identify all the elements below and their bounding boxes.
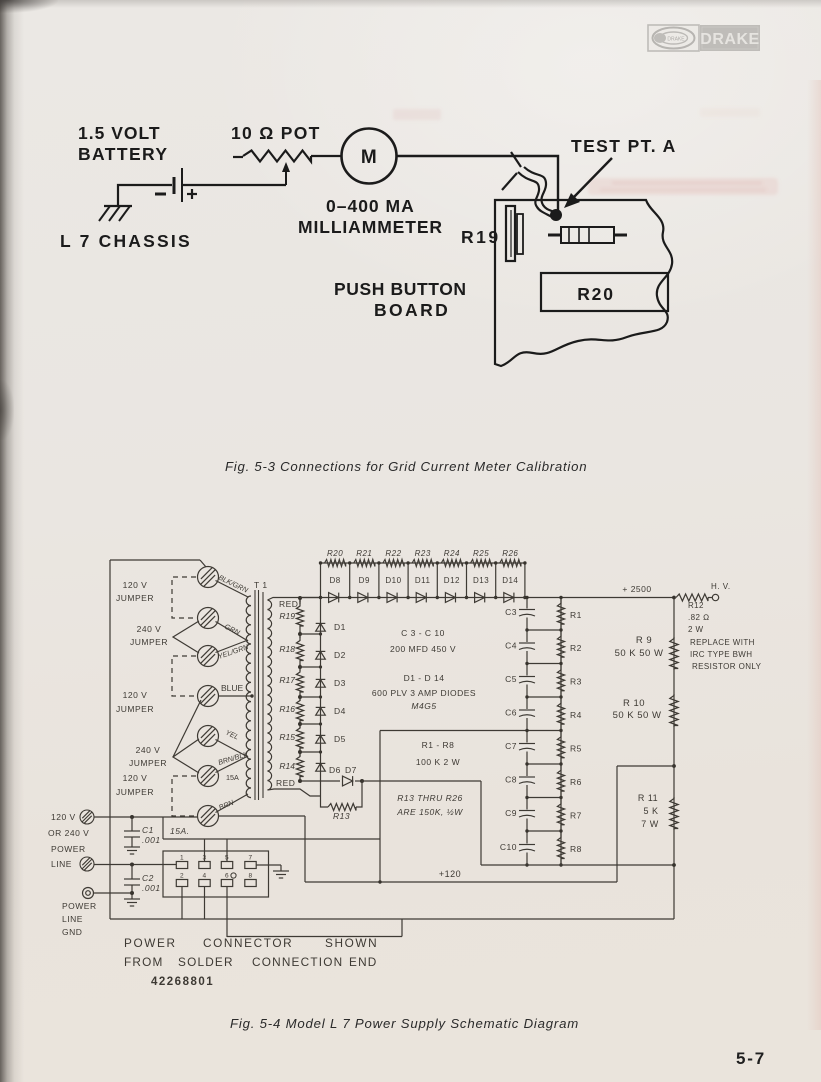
svg-text:D3: D3	[334, 678, 346, 688]
svg-text:R20: R20	[577, 284, 615, 304]
svg-text:R20: R20	[327, 549, 343, 558]
svg-text:LINE: LINE	[51, 859, 72, 869]
svg-text:10 Ω POT: 10 Ω POT	[231, 123, 321, 143]
svg-text:C 3 - C 10: C 3 - C 10	[401, 628, 445, 638]
svg-text:DRAKE: DRAKE	[667, 37, 685, 43]
svg-text:5-7: 5-7	[736, 1049, 766, 1068]
svg-text:120 V: 120 V	[51, 812, 76, 822]
svg-text:R1: R1	[570, 610, 582, 620]
svg-text:IRC TYPE BWH: IRC TYPE BWH	[690, 650, 752, 659]
svg-text:+120: +120	[439, 869, 461, 879]
svg-text:D12: D12	[444, 576, 460, 585]
svg-text:15A: 15A	[226, 773, 239, 782]
svg-text:R 11: R 11	[638, 793, 658, 803]
svg-text:OR 240 V: OR 240 V	[48, 828, 89, 838]
svg-text:JUMPER: JUMPER	[129, 758, 167, 768]
svg-text:+ 2500: + 2500	[622, 584, 651, 594]
svg-text:LINE: LINE	[62, 914, 83, 924]
svg-text:JUMPER: JUMPER	[130, 637, 168, 647]
svg-text:C1: C1	[142, 825, 154, 835]
svg-text:200 MFD 450 V: 200 MFD 450 V	[390, 644, 456, 654]
svg-text:120 V: 120 V	[123, 690, 148, 700]
svg-text:R6: R6	[570, 777, 582, 787]
svg-text:6: 6	[225, 873, 229, 880]
svg-text:JUMPER: JUMPER	[116, 704, 154, 714]
svg-text:D10: D10	[385, 576, 401, 585]
svg-text:L 7 CHASSIS: L 7 CHASSIS	[60, 231, 192, 251]
svg-text:C5: C5	[505, 674, 517, 684]
svg-text:GRN: GRN	[223, 622, 242, 638]
svg-text:BLUE: BLUE	[221, 683, 244, 693]
svg-text:JUMPER: JUMPER	[116, 787, 154, 797]
svg-text:1.5 VOLT: 1.5 VOLT	[78, 123, 161, 143]
svg-text:R23: R23	[415, 549, 431, 558]
svg-text:R22: R22	[385, 549, 401, 558]
svg-text:RESISTOR ONLY: RESISTOR ONLY	[692, 662, 762, 671]
svg-text:D11: D11	[415, 576, 431, 585]
svg-text:C10: C10	[500, 842, 517, 852]
svg-text:2 W: 2 W	[688, 625, 703, 634]
svg-text:600 PLV 3 AMP DIODES: 600 PLV 3 AMP DIODES	[372, 688, 476, 698]
svg-text:D4: D4	[334, 706, 346, 716]
svg-text:R21: R21	[356, 549, 372, 558]
svg-text:R7: R7	[570, 810, 582, 820]
svg-text:7 W: 7 W	[641, 819, 659, 829]
svg-text:R26: R26	[502, 549, 518, 558]
svg-text:Fig. 5-4 Model L 7 Power Su: Fig. 5-4 Model L 7 Power Supply Schemati…	[230, 1016, 579, 1031]
svg-text:Fig. 5-3 Connections for Grid: Fig. 5-3 Connections for Grid Current Me…	[225, 459, 587, 474]
svg-text:240 V: 240 V	[136, 745, 161, 755]
svg-text:D8: D8	[329, 576, 340, 585]
svg-text:M: M	[361, 147, 377, 168]
svg-text:.82 Ω: .82 Ω	[688, 613, 710, 622]
svg-text:BATTERY: BATTERY	[78, 144, 169, 164]
svg-text:PUSH BUTTON: PUSH BUTTON	[334, 279, 467, 299]
svg-text:D5: D5	[334, 734, 346, 744]
svg-text:15A.: 15A.	[170, 826, 190, 836]
svg-text:D14: D14	[502, 576, 518, 585]
svg-text:C9: C9	[505, 808, 517, 818]
svg-text:YEL: YEL	[224, 728, 240, 742]
svg-text:C2: C2	[142, 873, 154, 883]
svg-text:RED: RED	[276, 778, 295, 788]
svg-text:7: 7	[248, 855, 252, 862]
svg-text:R13 THRU R26: R13 THRU R26	[397, 793, 463, 803]
svg-text:42268801: 42268801	[151, 976, 214, 988]
svg-text:5 K: 5 K	[643, 806, 658, 816]
svg-text:R15: R15	[279, 732, 295, 742]
svg-text:C3: C3	[505, 607, 517, 617]
svg-text:50 K 50 W: 50 K 50 W	[613, 710, 662, 721]
svg-text:C7: C7	[505, 741, 517, 751]
svg-text:D1: D1	[334, 622, 346, 632]
svg-text:D9: D9	[359, 576, 370, 585]
svg-text:D7: D7	[345, 765, 357, 775]
svg-text:M4G5: M4G5	[411, 701, 436, 711]
svg-text:R19: R19	[279, 611, 295, 621]
svg-text:REPLACE WITH: REPLACE WITH	[690, 638, 755, 647]
svg-text:RED: RED	[279, 599, 298, 609]
svg-text:120 V: 120 V	[123, 580, 148, 590]
svg-text:0–400 MA: 0–400 MA	[326, 196, 415, 216]
svg-text:R13: R13	[333, 811, 350, 821]
svg-text:T 1: T 1	[254, 580, 268, 590]
svg-text:C6: C6	[505, 708, 517, 718]
svg-text:R17: R17	[279, 675, 295, 685]
svg-text:R12: R12	[688, 601, 704, 610]
svg-text:.001: .001	[142, 835, 161, 845]
svg-text:R2: R2	[570, 643, 582, 653]
svg-text:POWER: POWER	[62, 901, 97, 911]
svg-text:TEST PT. A: TEST PT. A	[571, 136, 677, 156]
svg-text:DRAKE: DRAKE	[700, 31, 759, 48]
svg-text:YEL/GRN: YEL/GRN	[217, 642, 251, 661]
svg-text:R24: R24	[444, 549, 460, 558]
svg-text:D6: D6	[329, 765, 341, 775]
svg-text:240 V: 240 V	[137, 624, 162, 634]
svg-text:BOARD: BOARD	[374, 300, 450, 320]
svg-text:R 10: R 10	[623, 698, 645, 709]
svg-text:R18: R18	[279, 644, 295, 654]
svg-text:50 K 50 W: 50 K 50 W	[615, 648, 664, 659]
svg-text:R 9: R 9	[636, 635, 652, 646]
svg-text:D2: D2	[334, 650, 346, 660]
svg-text:.001: .001	[142, 883, 161, 893]
svg-text:R3: R3	[570, 676, 582, 686]
svg-text:ARE 150K, ½W: ARE 150K, ½W	[396, 807, 463, 817]
svg-text:FROMSOLDERCONNECTIONEND: FROMSOLDERCONNECTIONEND	[124, 955, 378, 969]
svg-text:D1 - D 14: D1 - D 14	[404, 673, 445, 683]
svg-text:R4: R4	[570, 710, 582, 720]
svg-text:8: 8	[248, 873, 252, 880]
svg-text:C4: C4	[505, 641, 517, 651]
svg-text:100 K 2 W: 100 K 2 W	[416, 757, 460, 767]
svg-text:JUMPER: JUMPER	[116, 593, 154, 603]
svg-text:D13: D13	[473, 576, 489, 585]
svg-text:R19: R19	[461, 227, 501, 247]
svg-text:R25: R25	[473, 549, 489, 558]
svg-text:120 V: 120 V	[123, 773, 148, 783]
svg-text:H. V.: H. V.	[711, 582, 731, 591]
svg-text:BRN: BRN	[217, 798, 235, 812]
svg-text:BRN/BLK: BRN/BLK	[217, 749, 250, 767]
svg-text:POWER: POWER	[51, 844, 86, 854]
svg-text:MILLIAMMETER: MILLIAMMETER	[298, 217, 443, 237]
svg-text:R16: R16	[279, 704, 295, 714]
svg-text:1: 1	[180, 855, 184, 862]
svg-text:2: 2	[180, 873, 184, 880]
svg-text:POWERCONNECTORSHOWN: POWERCONNECTORSHOWN	[124, 936, 378, 950]
svg-text:R1 - R8: R1 - R8	[422, 740, 455, 750]
svg-text:R14: R14	[279, 761, 295, 771]
svg-text:4: 4	[202, 873, 206, 880]
svg-text:R5: R5	[570, 743, 582, 753]
svg-text:R8: R8	[570, 844, 582, 854]
svg-text:GND: GND	[62, 927, 82, 937]
svg-text:C8: C8	[505, 775, 517, 785]
